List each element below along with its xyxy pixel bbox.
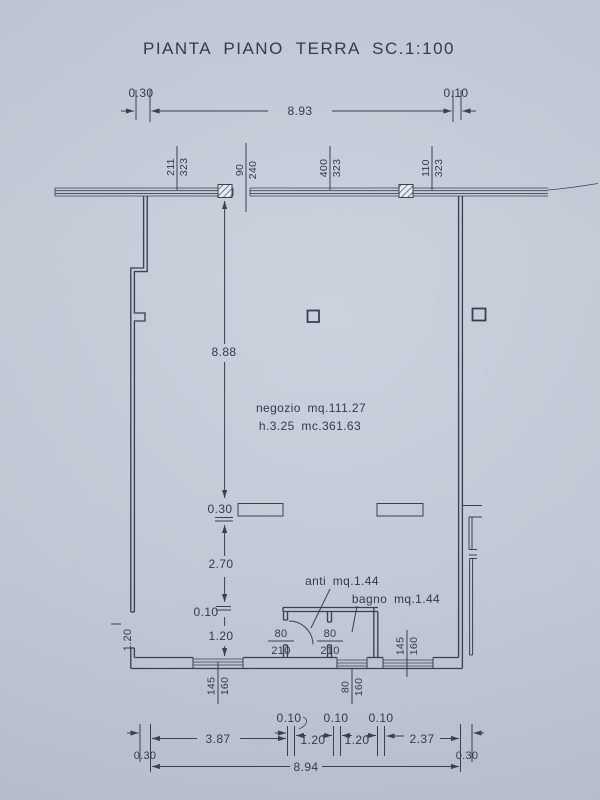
- rear-wall: [131, 658, 463, 669]
- anti-leader-line: [311, 589, 330, 628]
- bagno-leader-line: [352, 606, 357, 632]
- room-label-negozio-line2: h.3.25 mc.361.63: [259, 419, 361, 433]
- bottom-dimension-lines: 3.87 0.10 1.20 0.10 1.20 0.10 2.37 0.30 …: [127, 711, 484, 774]
- dim-top-right: 0.10: [444, 86, 469, 100]
- opening-label: 110 323: [420, 146, 445, 190]
- dim-segment: 1.20: [345, 733, 370, 747]
- window-label: 145 160: [395, 630, 421, 677]
- storefront-wall: [55, 184, 598, 197]
- opening-width: 400: [318, 159, 330, 177]
- window-height: 160: [408, 637, 420, 655]
- window-height: 160: [353, 678, 365, 696]
- opening-height: 323: [433, 159, 445, 177]
- opening-width: 110: [420, 159, 432, 177]
- door-width: 80: [275, 628, 288, 640]
- dim-beam: 0.30: [208, 502, 233, 516]
- pillar-square: [308, 311, 320, 323]
- opening-width: 90: [234, 164, 246, 176]
- dim-bottom-left: 0.30: [134, 750, 157, 762]
- dim-mid: 2.70: [209, 557, 234, 571]
- rear-window: [337, 660, 367, 666]
- opening-label: 400 323: [318, 146, 343, 190]
- opening-height: 323: [331, 159, 343, 177]
- window-label: 80 160: [340, 668, 366, 704]
- dim-top-left: 0.30: [129, 86, 154, 100]
- dim-lower: 1.20: [209, 629, 234, 643]
- right-wall: [459, 196, 463, 669]
- opening-label: 90 240: [234, 143, 259, 212]
- dim-left-wall: 1.20: [122, 629, 134, 652]
- opening-width: 211: [165, 158, 177, 176]
- title-block: PIANTA PIANO TERRA SC.1:100: [143, 39, 455, 58]
- pillar-hatched: [399, 185, 413, 198]
- room-label-negozio-line1: negozio mq.111.27: [256, 401, 366, 415]
- door-label: 80 210: [268, 628, 294, 657]
- pillar-square: [473, 309, 486, 321]
- drawing-title: PIANTA PIANO TERRA SC.1:100: [143, 39, 455, 58]
- window-width: 145: [395, 637, 407, 655]
- dim-gap: 0.10: [369, 711, 394, 725]
- room-label-bagno: bagno mq.1.44: [352, 592, 440, 606]
- left-wall: [111, 196, 147, 669]
- beam: [238, 504, 283, 517]
- dim-total: 8.94: [294, 760, 319, 774]
- vertical-dimension-chain: 8.88 0.30 2.70 0.10 1.20: [194, 201, 237, 656]
- right-exterior-structures: [462, 506, 482, 656]
- opening-label: 211 323: [165, 146, 190, 190]
- door-height: 210: [320, 645, 339, 657]
- floor-plan: PIANTA PIANO TERRA SC.1:100 0.30 8.93 0.…: [0, 0, 600, 800]
- left-wall-dimension: 1.20: [122, 629, 134, 652]
- dim-wall: 0.10: [194, 605, 219, 619]
- door-label: 80 210: [317, 628, 343, 657]
- ceiling-beams: [238, 504, 423, 517]
- beam: [377, 504, 423, 517]
- window-width: 80: [340, 681, 352, 693]
- dim-segment: 3.87: [206, 732, 231, 746]
- dim-depth: 8.88: [212, 345, 237, 359]
- opening-height: 323: [178, 158, 190, 176]
- dim-bottom-right: 0.30: [456, 750, 479, 762]
- door-labels: 80 210 80 210: [268, 628, 343, 657]
- window-width: 145: [206, 677, 218, 695]
- dim-gap: 0.10: [277, 711, 302, 725]
- dim-segment: 2.37: [410, 732, 435, 746]
- door-height: 210: [271, 645, 290, 657]
- dim-top-span: 8.93: [288, 104, 313, 118]
- window-height: 160: [219, 677, 231, 695]
- door-width: 80: [324, 628, 337, 640]
- rear-window: [383, 660, 433, 666]
- dim-gap: 0.10: [324, 711, 349, 725]
- pillar-hatched: [218, 185, 232, 198]
- opening-height: 240: [247, 161, 259, 179]
- room-label-anti: anti mq.1.44: [305, 574, 379, 588]
- top-dimension-line: 0.30 8.93 0.10: [121, 86, 476, 122]
- dim-segment: 1.20: [301, 733, 326, 747]
- front-opening-labels: 211 323 90 240 400 323 110 323: [165, 143, 445, 212]
